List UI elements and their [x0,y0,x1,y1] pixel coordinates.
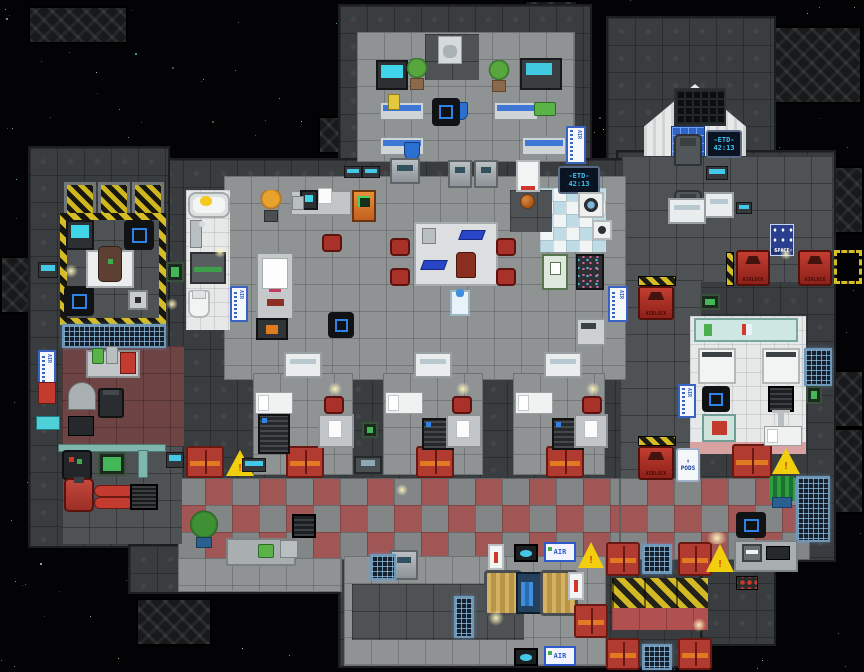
papers [318,188,332,204]
wall-console [166,452,184,468]
airlock-door-label: AIRLOCK [738,277,768,283]
star [630,0,631,1]
intercom[interactable] [514,648,538,666]
wall-light [214,246,226,258]
star [50,117,51,118]
hover-tool [36,416,60,430]
air-dispenser-lab: AIR [38,350,56,386]
pod-door[interactable] [668,198,706,224]
air-sign-label: AIR [546,652,574,660]
garden-pad [432,98,460,126]
ceiling-light [328,382,342,396]
chem-bottle [92,348,104,364]
star [255,135,256,136]
emergency-door[interactable] [606,638,640,670]
emergency-door[interactable] [606,542,640,576]
space-truss [28,6,128,44]
dorm-bed [385,392,423,414]
star [279,98,280,99]
paper [456,420,470,438]
arcade-machine[interactable] [352,190,376,222]
air-dispenser-lab-label: AIR [46,354,52,363]
hydroponics-tray[interactable] [494,102,538,120]
dark-case [766,546,790,560]
kelp-plant [766,476,798,512]
etd-timer-hall: -ETD- 42:13 [558,166,600,194]
bedsheet-vendor[interactable] [256,252,294,320]
wall-console [344,166,362,178]
star [14,666,15,667]
washing-machine[interactable] [578,192,604,218]
hall-pad [328,312,354,338]
biogenerator[interactable] [520,58,562,90]
wall-console [38,262,58,278]
bell-pepper [258,544,274,558]
airlock-door[interactable]: AIRLOCK [798,250,832,286]
star [131,10,132,11]
pod-engine [674,88,726,126]
star [762,660,763,661]
wall-screen [806,386,822,404]
dorm-locker[interactable] [258,414,290,454]
cluster-window [642,644,672,670]
emergency-door[interactable] [574,604,608,638]
dorm-bed [255,392,293,414]
airlock-door-label: AIRLOCK [640,311,672,317]
dorm-bed [515,392,553,414]
star [853,290,854,291]
operating-table [762,348,800,384]
star [242,648,243,649]
star [603,129,604,130]
blue-tray [458,230,486,240]
right-window [796,476,830,542]
star [6,18,8,20]
fire-extinguisher [120,352,136,374]
scrubber [130,484,158,510]
medbay-pad [702,386,730,412]
star [1,660,2,661]
etd-timer-hall-label: -ETD- 42:13 [560,172,598,188]
pod-bay-door[interactable] [704,192,734,218]
dorm-door[interactable] [544,352,582,378]
pod-console[interactable] [706,166,728,180]
star [807,13,808,14]
garden-potted-plant [486,60,512,92]
etd-timer-pod-label: -ETD- 42:13 [708,136,740,152]
star [59,591,60,592]
star [97,93,98,94]
toolbox [280,540,298,558]
blue-tray [420,260,448,270]
extinguisher-cabinet [488,544,504,570]
air-dispenser-medbay: AIR [678,384,696,418]
garden-sink [438,36,462,64]
emergency-door[interactable] [286,446,324,478]
air-sign: AIR [544,542,576,562]
airlock-door-label: AIRLOCK [800,277,830,283]
laptop[interactable] [354,456,382,474]
emergency-door[interactable] [546,446,584,478]
space-suit [98,246,122,282]
etd-timer-pod: -ETD- 42:13 [706,130,742,158]
star [674,669,675,670]
air-sign: AIR [544,646,576,666]
wall-screen [700,294,720,310]
emergency-door[interactable] [186,446,224,478]
wall-light [64,264,78,278]
star [860,533,861,534]
wall-device [362,422,378,438]
air-dispenser-bathroom: AIR [230,286,248,322]
red-backpack [456,252,476,278]
star [757,668,758,669]
red-stool[interactable] [496,268,516,286]
intercom[interactable] [514,544,538,562]
wall-console [242,458,266,472]
water-cooler[interactable] [450,290,470,316]
dryer[interactable] [592,220,612,240]
emergency-door[interactable] [678,638,712,670]
space-truss [136,598,212,646]
hazard-stripe [638,436,676,446]
air-dispenser-bathroom-label: AIR [238,290,244,299]
star [599,117,601,119]
photocopier[interactable] [576,318,606,346]
desk-lamp [68,382,96,410]
star [172,67,174,69]
paper [584,420,598,438]
star [96,72,97,73]
operating-table [698,348,736,384]
basketball [520,194,535,209]
external-dock-tile [834,250,862,284]
wall-console [362,166,380,178]
eva-pad [64,286,94,316]
ceiling-light [586,382,600,396]
burner [68,416,94,436]
red-stool[interactable] [496,238,516,256]
pods-sign-label: ↑ PODS [678,458,698,472]
emergency-door[interactable] [416,446,454,478]
pod-bay-panel [736,202,752,214]
medbay-window [804,348,832,386]
star [301,121,302,122]
star [12,128,13,129]
star [289,655,290,656]
hall-door[interactable] [474,160,498,188]
air-dispenser-hall: AIR [608,286,628,322]
star [40,563,42,565]
shower [190,220,202,248]
cluster-window [642,544,672,574]
rubber-duck [200,196,212,206]
medical-bed [764,426,802,446]
star [819,7,820,8]
medical-cabinet[interactable] [702,414,736,442]
floor-light [396,484,408,496]
air-sign-label: AIR [546,548,574,556]
paper [328,420,342,438]
snack-vendor[interactable] [576,254,604,290]
star [838,633,839,634]
red-stool[interactable] [452,396,472,414]
station-map: AIR-ETD- 42:13SPACEAIRLOCKAIRLOCKAIRAIRL… [0,0,864,672]
star [7,128,8,129]
apple-plant [188,510,220,548]
bottom-center-window [454,596,474,638]
star [126,580,127,581]
air-dispenser-garden-label: AIR [576,130,582,139]
red-stool[interactable] [390,268,410,286]
dorm-door[interactable] [414,352,452,378]
emergency-shutter[interactable] [732,444,772,478]
incense-plant [258,190,284,222]
floor-light [488,610,504,626]
star [845,666,846,667]
star [846,332,847,333]
hazard-stripe [638,276,676,286]
star [847,147,848,148]
star [128,137,129,138]
star [69,52,70,53]
star [119,109,120,110]
right-pad [736,512,766,538]
dorm-door[interactable] [284,352,322,378]
basketball-hoop [516,160,540,192]
hall-door[interactable] [390,158,420,184]
red-stool[interactable] [582,396,602,414]
star [235,70,236,71]
red-chair[interactable] [322,234,342,252]
garden-plant-pot [404,58,430,90]
pod-seat [674,134,702,166]
air-dispenser-hall-label: AIR [618,290,624,299]
star [41,61,42,62]
wall-light [780,248,792,260]
airlock-door[interactable]: AIRLOCK [638,286,674,320]
toilet[interactable] [188,290,210,318]
star [25,584,26,585]
star [135,53,137,55]
star [90,616,91,617]
control-panel [98,452,126,476]
floor-hazard-row [612,578,708,608]
star [15,581,16,582]
vent-grille [768,386,794,412]
office-chair[interactable] [98,388,124,418]
eva-console[interactable] [66,220,94,250]
airlock-door[interactable]: AIRLOCK [638,446,674,480]
red-stool[interactable] [390,238,410,256]
star [118,658,119,659]
pipe-vertical [138,450,148,478]
red-canister[interactable] [64,478,94,512]
red-stool[interactable] [324,396,344,414]
bottom-window [370,554,396,580]
jug [422,228,436,244]
wall-button[interactable] [128,290,148,310]
hall-door[interactable] [448,160,472,188]
pump[interactable] [62,450,92,480]
hazard-stripe [726,252,734,286]
star [14,402,15,403]
wall-screen [166,262,184,282]
air-dispenser-medbay-label: AIR [686,388,692,397]
star [594,132,595,133]
star [44,616,45,617]
fax-machine[interactable] [742,544,762,562]
star [201,81,202,82]
wall-light [166,298,178,310]
star [11,520,12,521]
pods-sign: ↑ PODS [676,448,700,482]
air-dispenser-garden: AIR [566,126,586,164]
floor-light [692,618,706,632]
printer [292,196,304,210]
star [141,122,142,123]
vent-grille [292,514,316,538]
wall-charges [38,382,56,404]
star [16,179,17,180]
hydroponics-tray[interactable] [522,137,566,155]
red-buttons[interactable] [736,576,758,590]
hydroponics-tray[interactable] [380,102,424,120]
chem-flask [106,346,118,364]
eva-window [62,324,166,348]
floor-light [704,532,730,544]
star [22,585,23,586]
red-pipes [94,482,134,510]
star [212,121,214,123]
star [16,218,17,219]
medbay-table [694,318,798,342]
star [820,118,821,119]
airlock-door[interactable]: AIRLOCK [736,250,770,286]
star [5,9,6,10]
juice-vendor[interactable] [256,318,288,340]
star [854,7,855,8]
airlock-door-label: AIRLOCK [640,471,672,477]
star [336,23,337,24]
ceiling-light [456,382,470,396]
eva-pad [124,220,154,250]
star [238,22,239,23]
melon-slice [534,102,556,116]
star [779,147,780,148]
coffee-vendor[interactable] [542,254,568,290]
star [203,79,204,80]
extinguisher-cabinet [568,572,584,600]
space-truss [762,26,862,104]
seed-packet [388,94,400,110]
star [265,120,266,121]
star [9,15,10,16]
